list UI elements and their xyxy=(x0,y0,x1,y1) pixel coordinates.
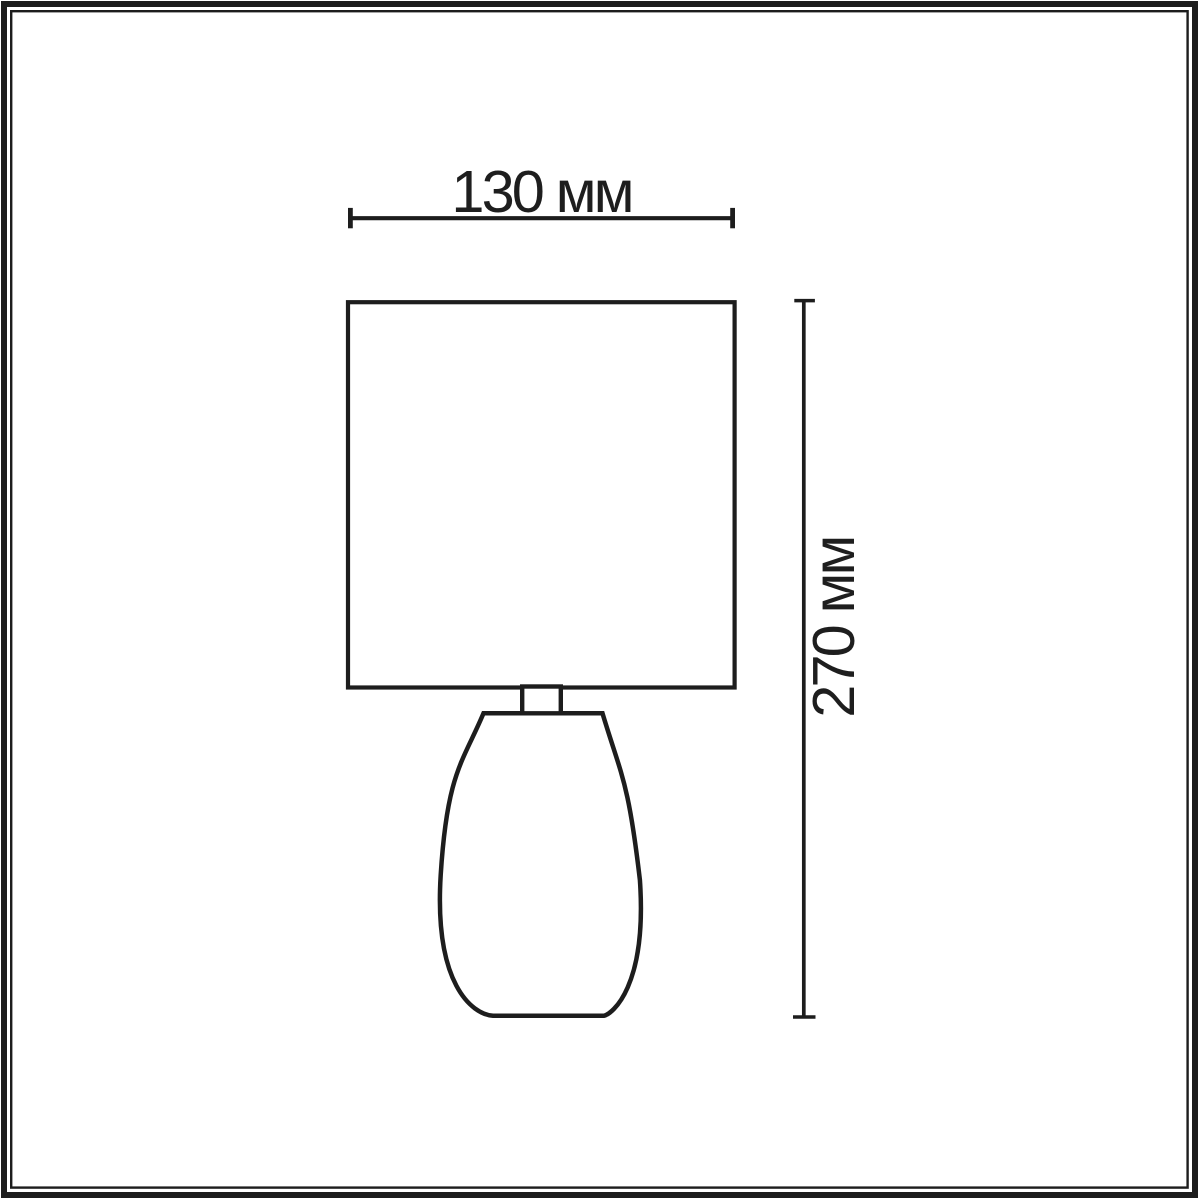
svg-text:130 мм: 130 мм xyxy=(451,158,631,225)
svg-text:270 мм: 270 мм xyxy=(800,537,867,717)
